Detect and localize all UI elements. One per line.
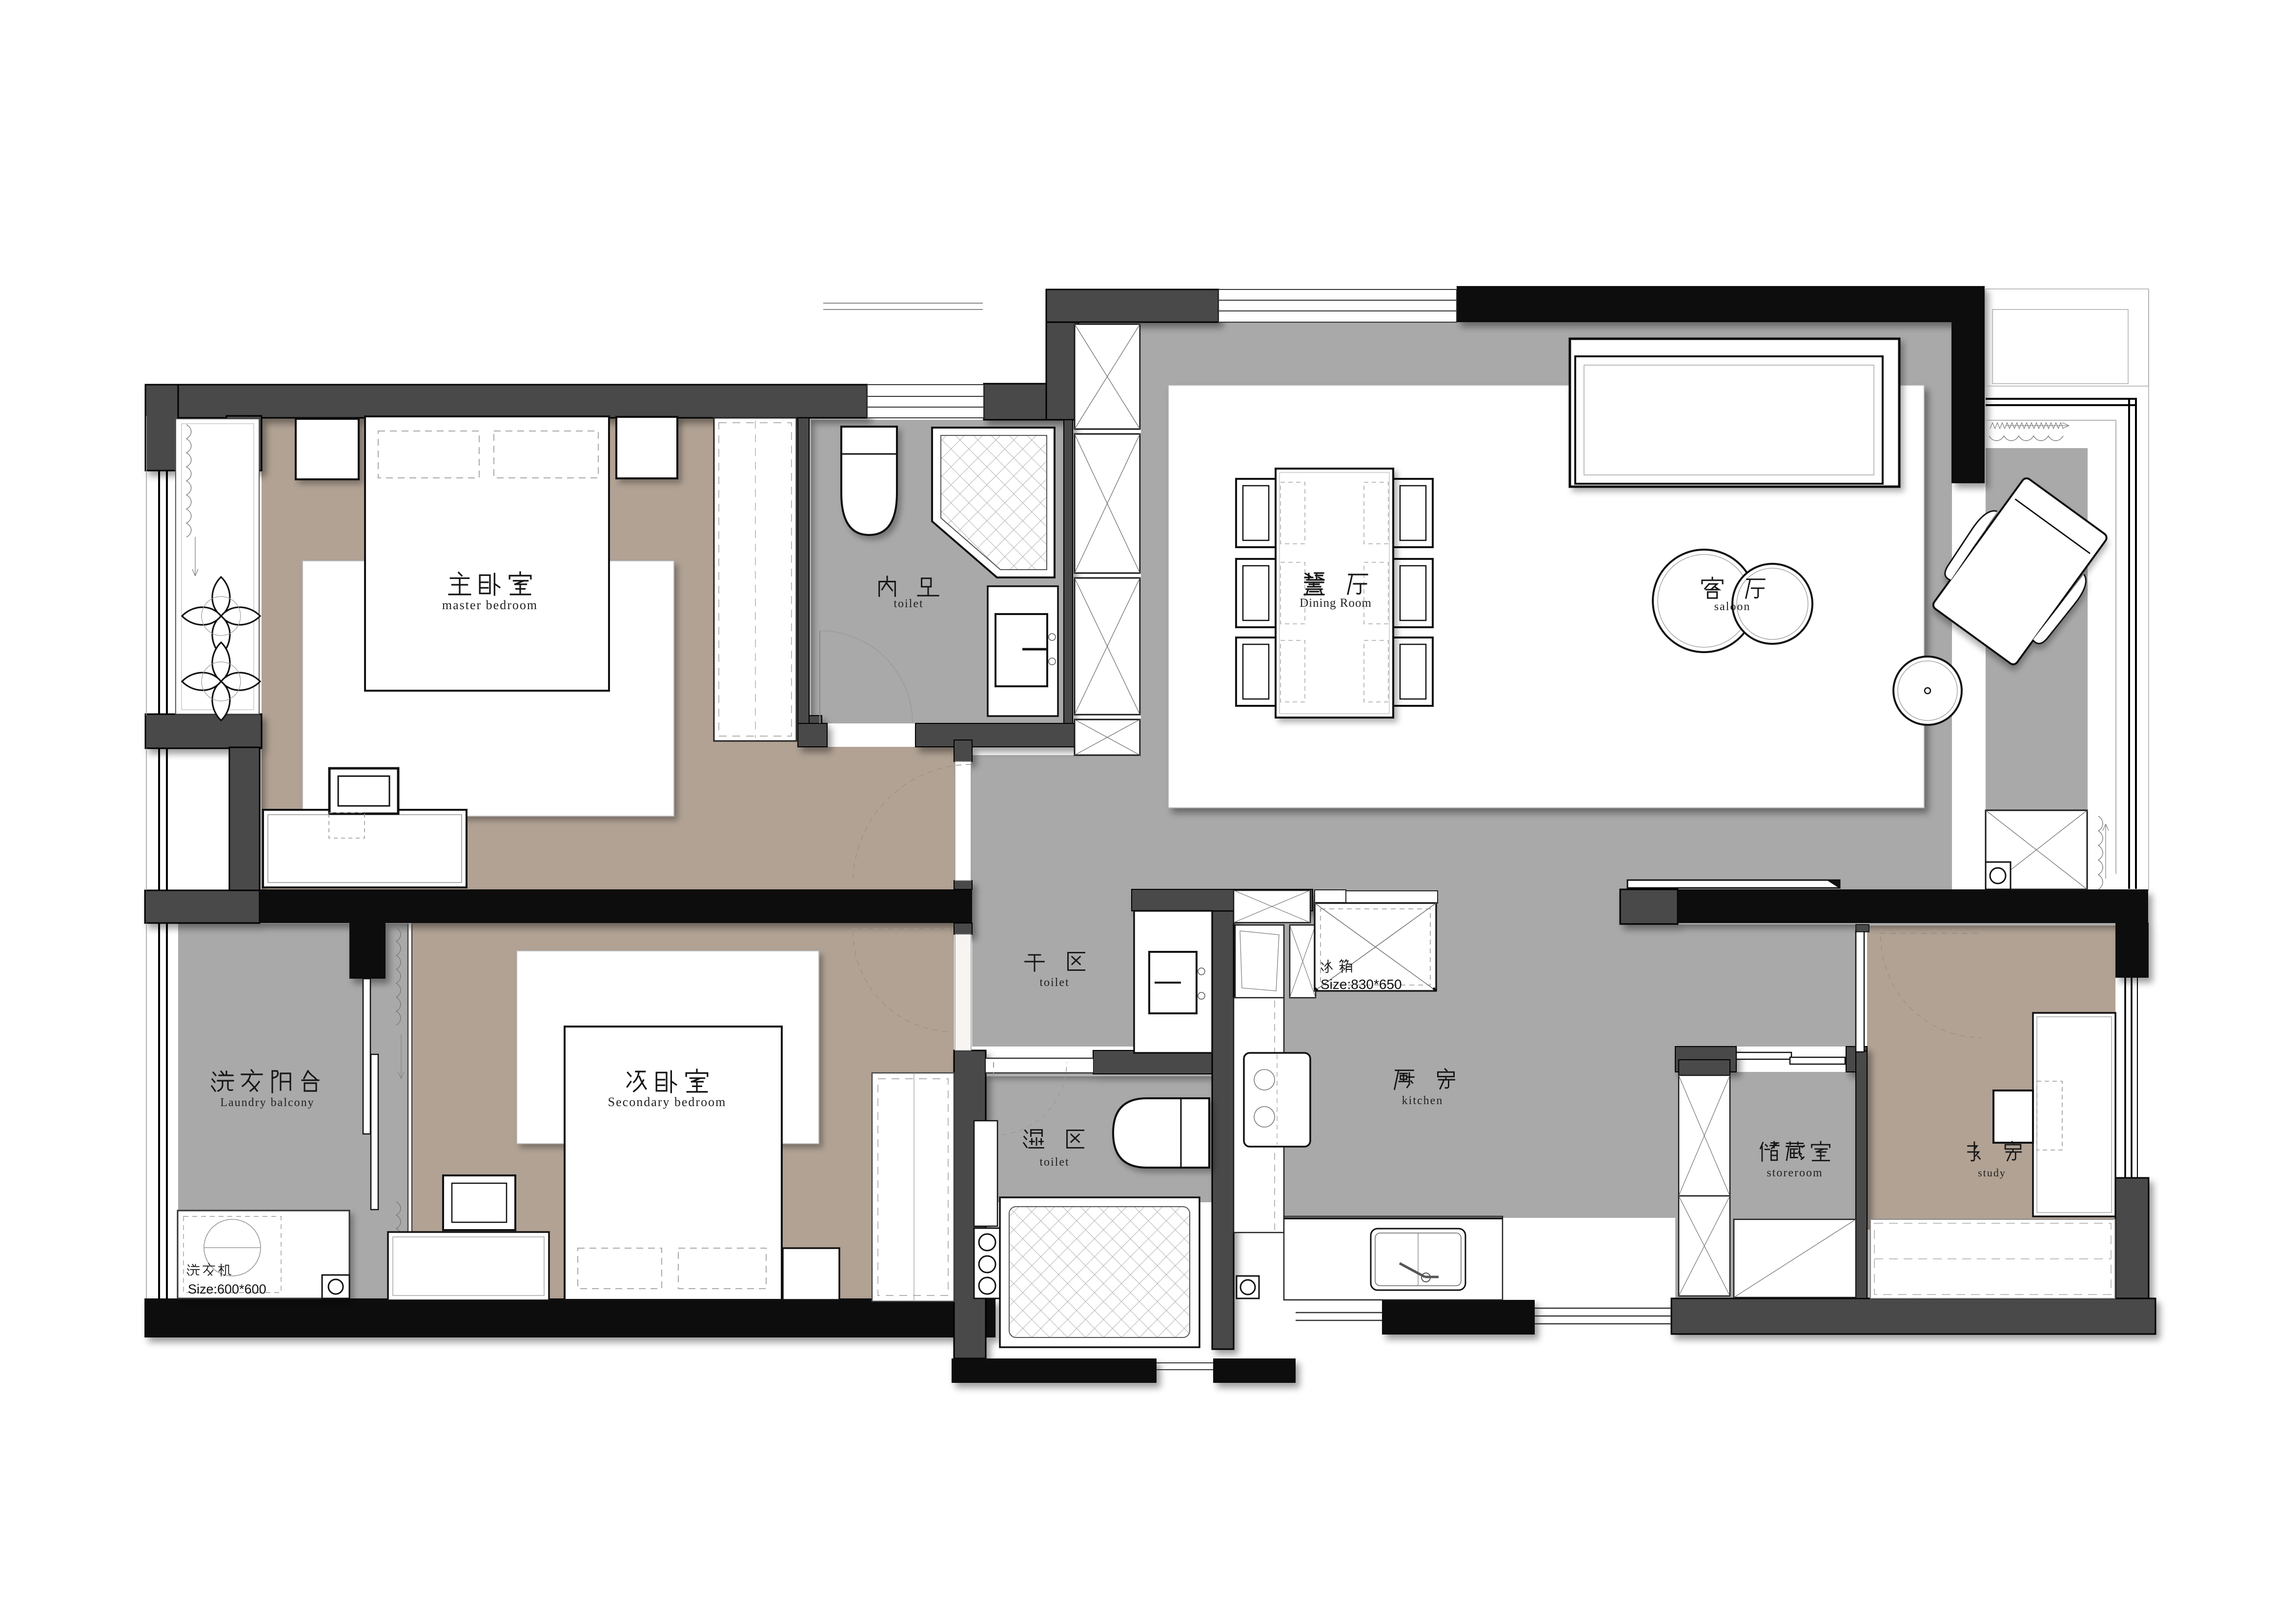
svg-text:toilet: toilet <box>894 597 923 610</box>
svg-text:master bedroom: master bedroom <box>442 598 538 612</box>
svg-text:saloon: saloon <box>1714 600 1751 613</box>
svg-text:toilet: toilet <box>1039 976 1069 989</box>
svg-text:toilet: toilet <box>1039 1156 1069 1169</box>
svg-text:Laundry balcony: Laundry balcony <box>220 1096 314 1109</box>
svg-text:Size:830*650: Size:830*650 <box>1321 977 1402 992</box>
svg-text:Size:600*600: Size:600*600 <box>188 1282 266 1296</box>
svg-text:Dining Room: Dining Room <box>1300 596 1372 610</box>
svg-text:Secondary bedroom: Secondary bedroom <box>608 1095 727 1109</box>
svg-text:study: study <box>1978 1167 2006 1179</box>
svg-text:storeroom: storeroom <box>1767 1167 1823 1179</box>
svg-text:kitchen: kitchen <box>1402 1094 1443 1107</box>
